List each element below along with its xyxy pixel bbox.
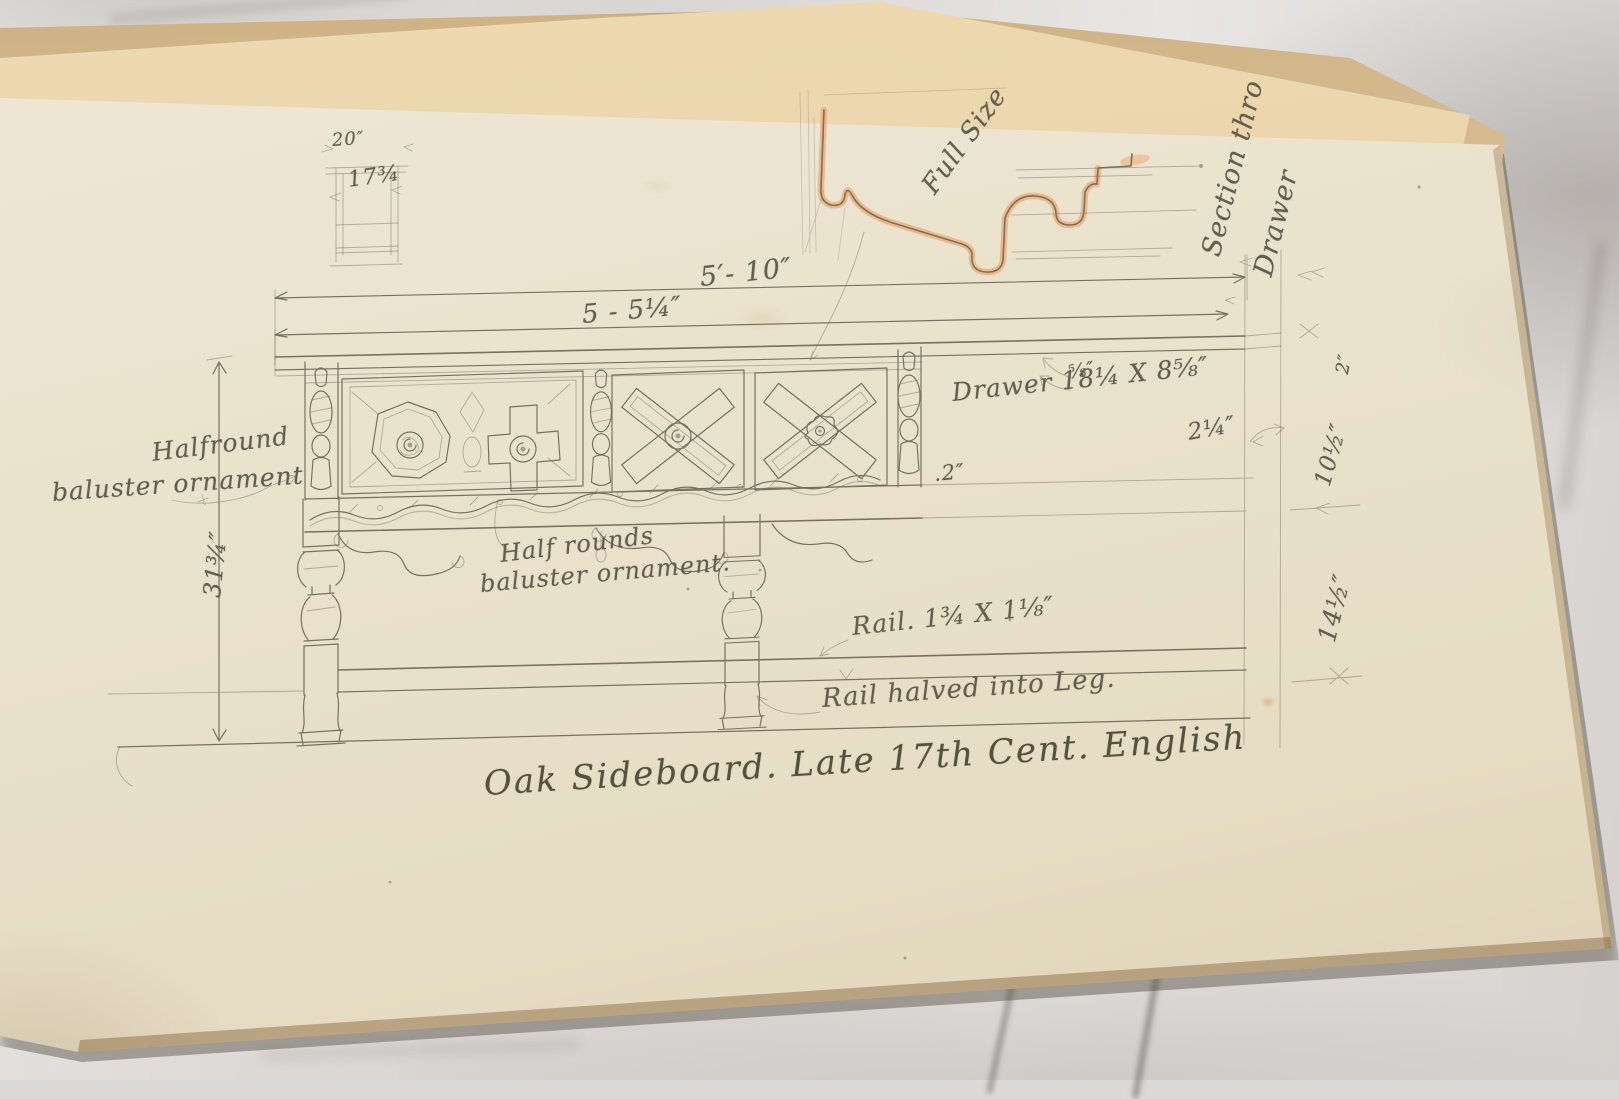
full-size-label: Full Size <box>916 82 1013 200</box>
gap-dim: .2″ <box>933 459 966 486</box>
rail-size-dim: Rail. 1¾ X 1⅛″ <box>850 591 1055 641</box>
overall-height-dim: 31¾″ <box>198 530 233 599</box>
top-length-dim: 5 - 5¼″ <box>581 291 684 330</box>
end-view-height-label: 17¾ <box>346 161 401 193</box>
photo-of-sketchbook: { "colors": { "pencil": "#79705f", "penc… <box>0 0 1619 1080</box>
overall-width-dim: 5′- 10″ <box>698 252 793 292</box>
underframe-height-dim: 14½″ <box>1312 571 1357 645</box>
halfround-note-line2: baluster ornament <box>51 460 305 507</box>
section-drawer-label: Drawer <box>1248 167 1304 280</box>
rail-note: Rail halved into Leg. <box>821 664 1116 714</box>
sketch-title: Oak Sideboard. Late 17th Cent. English <box>483 717 1248 804</box>
halfround-note-line1: Halfround <box>150 421 291 467</box>
end-view-width-label: 20″ <box>331 128 365 151</box>
annotations-layer: 20″ 17¾ Full Size Section thro Drawer 5′… <box>0 0 1619 1080</box>
edge-small-dim: 2″ <box>1332 352 1356 376</box>
drawer-depth-dim: 10½″ <box>1310 420 1353 489</box>
edge-offset-dim: 2¼″ <box>1186 412 1238 446</box>
